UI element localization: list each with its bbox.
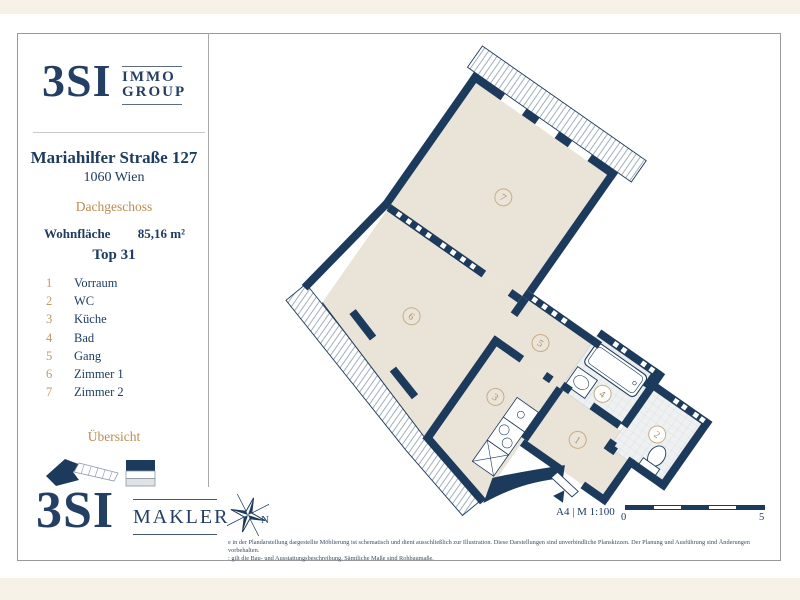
- scale-segment: [709, 506, 737, 509]
- page-top-margin: [0, 0, 800, 14]
- legend-label: Vorraum: [74, 276, 118, 291]
- logo-sub-immo: IMMO: [122, 67, 182, 85]
- scale-segment: [626, 506, 654, 509]
- legend-label: WC: [74, 294, 94, 309]
- disclaimer-text: e in der Plandarstellung dargestellte Mö…: [228, 539, 780, 563]
- legend-num: 1: [46, 276, 52, 291]
- overview-block-icon: [126, 460, 155, 486]
- legend-row-zimmer1: 6Zimmer 1: [0, 367, 208, 385]
- scale-bar: [625, 505, 765, 510]
- legend-label: Zimmer 2: [74, 385, 124, 400]
- scale-segment: [736, 506, 764, 509]
- logo-rule-bottom: [122, 104, 182, 105]
- legend-num: 7: [46, 385, 52, 400]
- legend-row-kueche: 3Küche: [0, 312, 208, 330]
- living-area-row: Wohnfläche 85,16 m²: [44, 226, 185, 242]
- legend-row-wc: 2WC: [0, 294, 208, 312]
- makler-word: MAKLER: [133, 500, 217, 534]
- sidebar-divider: [208, 33, 209, 487]
- living-area-label: Wohnfläche: [44, 226, 110, 241]
- legend-num: 6: [46, 367, 52, 382]
- format-scale-label: A4 | M 1:100: [556, 506, 615, 518]
- footer-logo-text: 3SI: [36, 481, 114, 540]
- legend-num: 2: [46, 294, 52, 309]
- makler-rule-bottom: [133, 534, 217, 535]
- address-city: 1060 Wien: [20, 170, 208, 186]
- legend-row-bad: 4Bad: [0, 331, 208, 349]
- legend-label: Küche: [74, 312, 107, 327]
- company-logo-text: 3SI: [42, 54, 111, 107]
- scale-segment: [654, 506, 682, 509]
- legend-row-zimmer2: 7Zimmer 2: [0, 385, 208, 403]
- legend-label: Zimmer 1: [74, 367, 124, 382]
- company-logo-subblock: IMMO GROUP: [122, 66, 182, 105]
- legend-num: 4: [46, 331, 52, 346]
- legend-label: Gang: [74, 349, 101, 364]
- legend-num: 3: [46, 312, 52, 327]
- legend-label: Bad: [74, 331, 94, 346]
- disclaimer-line-2: : gilt die Bau- und Ausstattungsbeschrei…: [228, 555, 780, 563]
- unit-label: Top 31: [20, 247, 208, 264]
- sidebar-rule: [33, 132, 205, 133]
- legend-row-gang: 5Gang: [0, 349, 208, 367]
- legend-row-vorraum: 1Vorraum: [0, 276, 208, 294]
- address-street: Mariahilfer Straße 127: [20, 148, 208, 168]
- floor-label: Dachgeschoss: [20, 199, 208, 215]
- page-bottom-margin: [0, 578, 800, 600]
- living-area-value: 85,16 m²: [138, 226, 185, 242]
- scale-start-label: 0: [621, 512, 626, 523]
- logo-sub-group: GROUP: [122, 85, 182, 104]
- legend-num: 5: [46, 349, 52, 364]
- room-legend: 1Vorraum 2WC 3Küche 4Bad 5Gang 6Zimmer 1…: [0, 276, 208, 403]
- scale-segment: [681, 506, 709, 509]
- overview-label: Übersicht: [20, 429, 208, 445]
- floor-plan: 7 6 5 3 4 1 2: [210, 33, 790, 560]
- north-label: N: [261, 514, 269, 526]
- scale-end-label: 5: [759, 512, 764, 523]
- disclaimer-line-1: e in der Plandarstellung dargestellte Mö…: [228, 539, 780, 555]
- footer-logo-subblock: MAKLER: [133, 499, 217, 535]
